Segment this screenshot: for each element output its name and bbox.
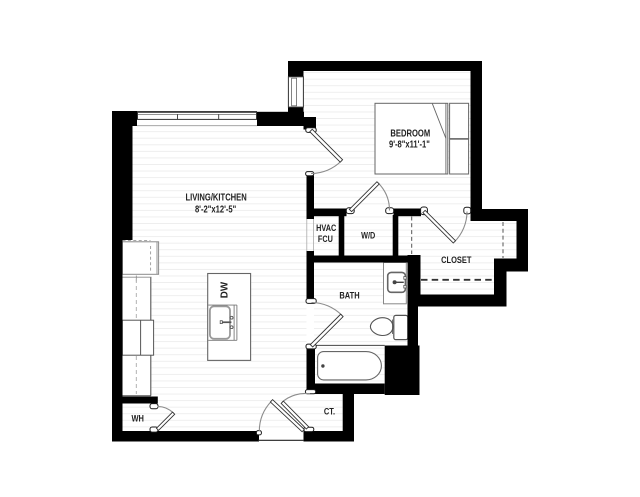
- svg-text:9'-8"x11'-1": 9'-8"x11'-1": [389, 138, 430, 149]
- svg-text:W/D: W/D: [361, 231, 375, 241]
- svg-text:WH: WH: [131, 414, 143, 424]
- svg-text:BEDROOM: BEDROOM: [390, 127, 430, 138]
- svg-text:CLOSET: CLOSET: [441, 255, 471, 265]
- svg-text:BATH: BATH: [339, 291, 359, 301]
- svg-text:HVAC: HVAC: [316, 223, 336, 233]
- svg-text:8'-2"x12'-5": 8'-2"x12'-5": [195, 203, 236, 214]
- svg-text:CT.: CT.: [324, 407, 335, 417]
- svg-text:LIVING/KITCHEN: LIVING/KITCHEN: [185, 191, 246, 202]
- svg-text:DW: DW: [220, 281, 231, 298]
- svg-text:FCU: FCU: [318, 234, 333, 244]
